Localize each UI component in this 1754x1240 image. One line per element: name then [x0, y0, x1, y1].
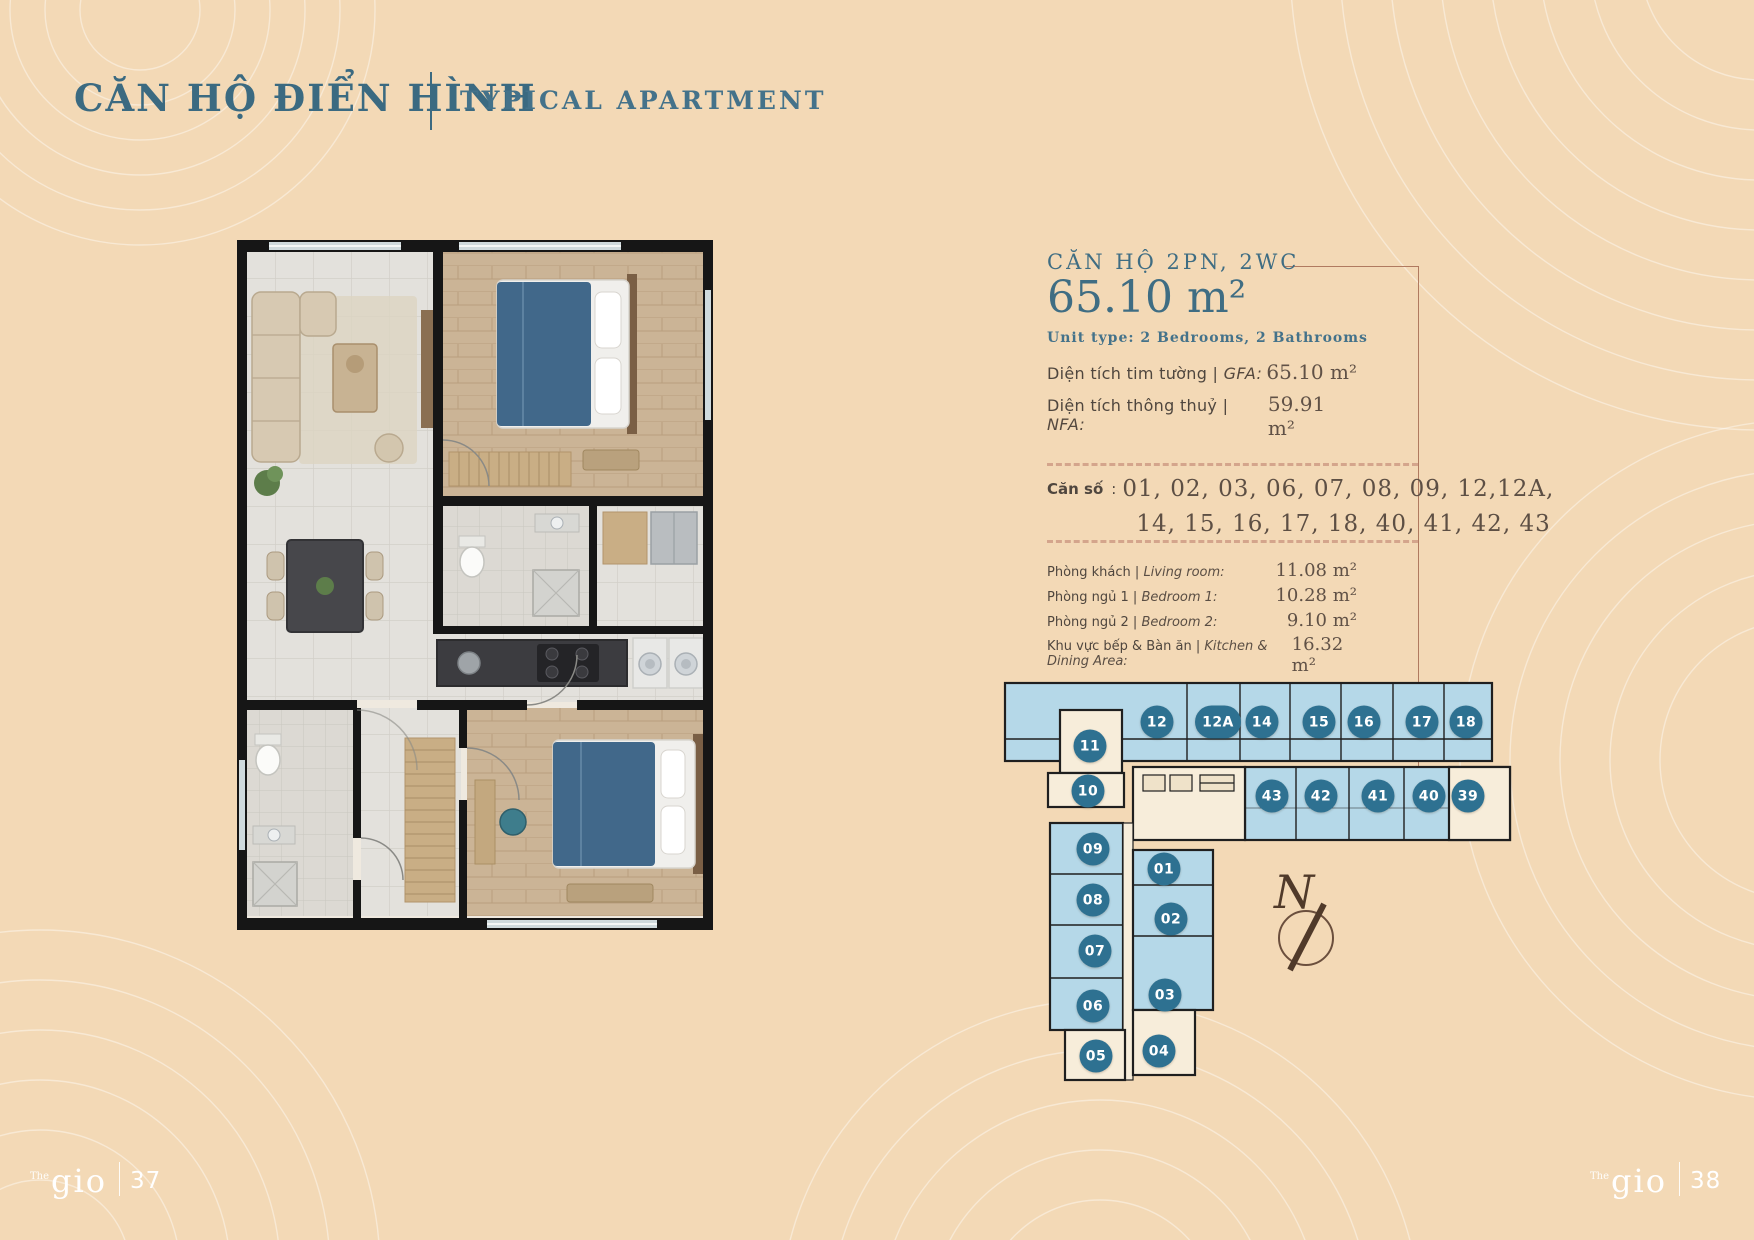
contour-group-top-right — [1290, 0, 1754, 430]
room-row-living: Phòng khách | Living room: 11.08 m² — [1047, 560, 1357, 581]
keyplan-unit-badge: 12A — [1195, 706, 1241, 739]
bed1-pillow — [595, 358, 621, 414]
unit-heading: CĂN HỘ 2PN, 2WC — [1047, 250, 1299, 274]
keyplan-unit-badge: 09 — [1077, 833, 1110, 866]
unit-numbers-block: Căn số : 01, 02, 03, 06, 07, 08, 09, 12,… — [1047, 472, 1554, 542]
bed2-pillow — [661, 750, 685, 798]
keyplan-unit-badge: 05 — [1080, 1040, 1113, 1073]
keyplan-unit-badge: 01 — [1148, 853, 1181, 886]
floor-key-plan: N 11101212A14151617184342414039090108020… — [930, 640, 1520, 1085]
toilet2-tank — [255, 734, 281, 745]
keyplan-unit-badge: 10 — [1072, 775, 1105, 808]
spec-row-gfa: Diện tích tim tường | GFA: 65.10 m² — [1047, 360, 1357, 384]
keyplan-unit-badge: 41 — [1362, 780, 1395, 813]
keyplan-unit-badge: 06 — [1077, 990, 1110, 1023]
bed2-blanket — [553, 742, 655, 866]
bedroom1-bench — [583, 450, 639, 470]
bed1-blanket — [497, 282, 591, 426]
cooktop — [537, 644, 599, 682]
kitchen-cabinet — [603, 512, 647, 564]
coffee-table — [333, 344, 377, 412]
sofa-chaise — [300, 292, 336, 336]
dashed-divider — [1047, 540, 1418, 543]
unit-numbers-list: 01, 02, 03, 06, 07, 08, 09, 12,12A, 14, … — [1122, 472, 1554, 542]
footer-right: The gio 38 — [1590, 1162, 1721, 1196]
keyplan-unit-badge: 04 — [1143, 1035, 1176, 1068]
footer-divider — [1679, 1162, 1680, 1196]
keyplan-unit-badge: 12 — [1141, 706, 1174, 739]
keyplan-unit-badge: 07 — [1079, 935, 1112, 968]
dining-chair — [267, 552, 284, 580]
unit-type-english: Unit type: 2 Bedrooms, 2 Bathrooms — [1047, 330, 1368, 346]
dining-chair — [267, 592, 284, 620]
page-number-right: 38 — [1690, 1168, 1721, 1194]
bed2-pillow — [661, 806, 685, 854]
keyplan-unit-badge: 16 — [1348, 706, 1381, 739]
page-title-english: TYPICAL APARTMENT — [460, 86, 826, 115]
desk-chair — [500, 809, 526, 835]
sofa — [252, 292, 300, 462]
dining-chair — [366, 552, 383, 580]
keyplan-unit-badge: 40 — [1413, 780, 1446, 813]
toilet1-tank — [459, 536, 485, 547]
gfa-label: Diện tích tim tường | GFA: — [1047, 364, 1262, 383]
keyplan-unit-badge: 15 — [1303, 706, 1336, 739]
bedroom2-bench — [567, 884, 653, 902]
unit-numbers-label: Căn số — [1047, 472, 1103, 498]
gfa-value: 65.10 m² — [1266, 360, 1357, 384]
north-compass: N — [1273, 865, 1333, 970]
footer-left: The gio 37 — [30, 1162, 161, 1196]
keyplan-unit-badge: 14 — [1246, 706, 1279, 739]
keyplan-unit-badge: 17 — [1406, 706, 1439, 739]
nfa-label: Diện tích thông thuỷ | NFA: — [1047, 396, 1268, 434]
dashed-divider — [1047, 463, 1418, 466]
keyplan-unit-badge: 08 — [1077, 884, 1110, 917]
bed1-pillow — [595, 292, 621, 348]
apartment-floor-plan — [237, 240, 737, 930]
keyplan-unit-badge: 42 — [1305, 780, 1338, 813]
bracket-line-horizontal — [1284, 266, 1418, 267]
contour-group-top-left — [0, 0, 375, 245]
keyplan-unit-badge: 43 — [1256, 780, 1289, 813]
brand-logo: gio — [1611, 1166, 1667, 1196]
toilet2 — [256, 745, 280, 775]
unit-area: 65.10 m² — [1047, 272, 1246, 323]
room-row-bedroom1: Phòng ngủ 1 | Bedroom 1: 10.28 m² — [1047, 585, 1357, 606]
brand-logo: gio — [51, 1166, 107, 1196]
keyplan-unit-badge: 03 — [1149, 979, 1182, 1012]
keyplan-unit-badge: 18 — [1450, 706, 1483, 739]
footer-divider — [119, 1162, 120, 1196]
page-number-left: 37 — [130, 1168, 161, 1194]
table-plant — [316, 577, 334, 595]
keyplan-unit-badge: 02 — [1155, 903, 1188, 936]
spec-row-nfa: Diện tích thông thuỷ | NFA: 59.91 m² — [1047, 392, 1357, 440]
pouf — [375, 434, 403, 462]
brand-prefix: The — [1590, 1171, 1609, 1182]
hall-wardrobe — [405, 738, 455, 902]
desk — [475, 780, 495, 864]
keyplan-unit-badge: 11 — [1074, 730, 1107, 763]
north-label: N — [1273, 865, 1316, 919]
title-divider — [430, 72, 432, 130]
toilet1 — [460, 547, 484, 577]
dining-chair — [366, 592, 383, 620]
tv-console — [421, 310, 433, 428]
keyplan-unit-badge: 39 — [1452, 780, 1485, 813]
brand-prefix: The — [30, 1171, 49, 1182]
kitchen-sink — [458, 652, 480, 674]
nfa-value: 59.91 m² — [1268, 392, 1357, 440]
room-row-bedroom2: Phòng ngủ 2 | Bedroom 2: 9.10 m² — [1047, 610, 1357, 631]
bedroom1-wardrobe — [449, 452, 571, 486]
